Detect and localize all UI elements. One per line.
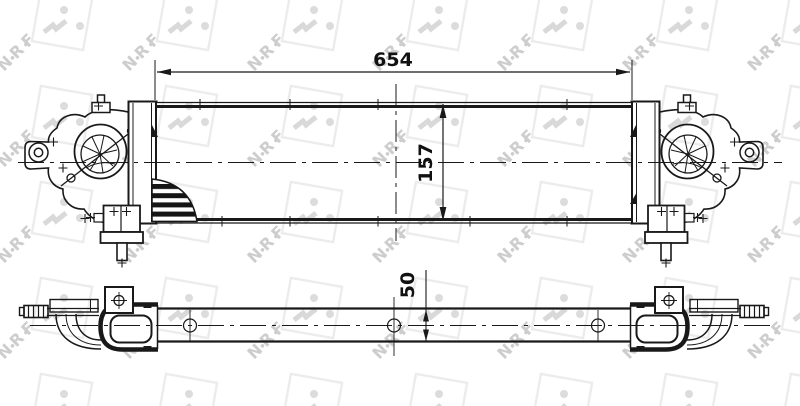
dimension-depth-label: 50 xyxy=(397,272,419,298)
dimension-height-label: 157 xyxy=(415,143,437,183)
dimension-width-label: 654 xyxy=(373,49,413,71)
drawing-canvas: NRF xyxy=(0,0,800,406)
technical-drawing: NRF xyxy=(0,0,800,406)
